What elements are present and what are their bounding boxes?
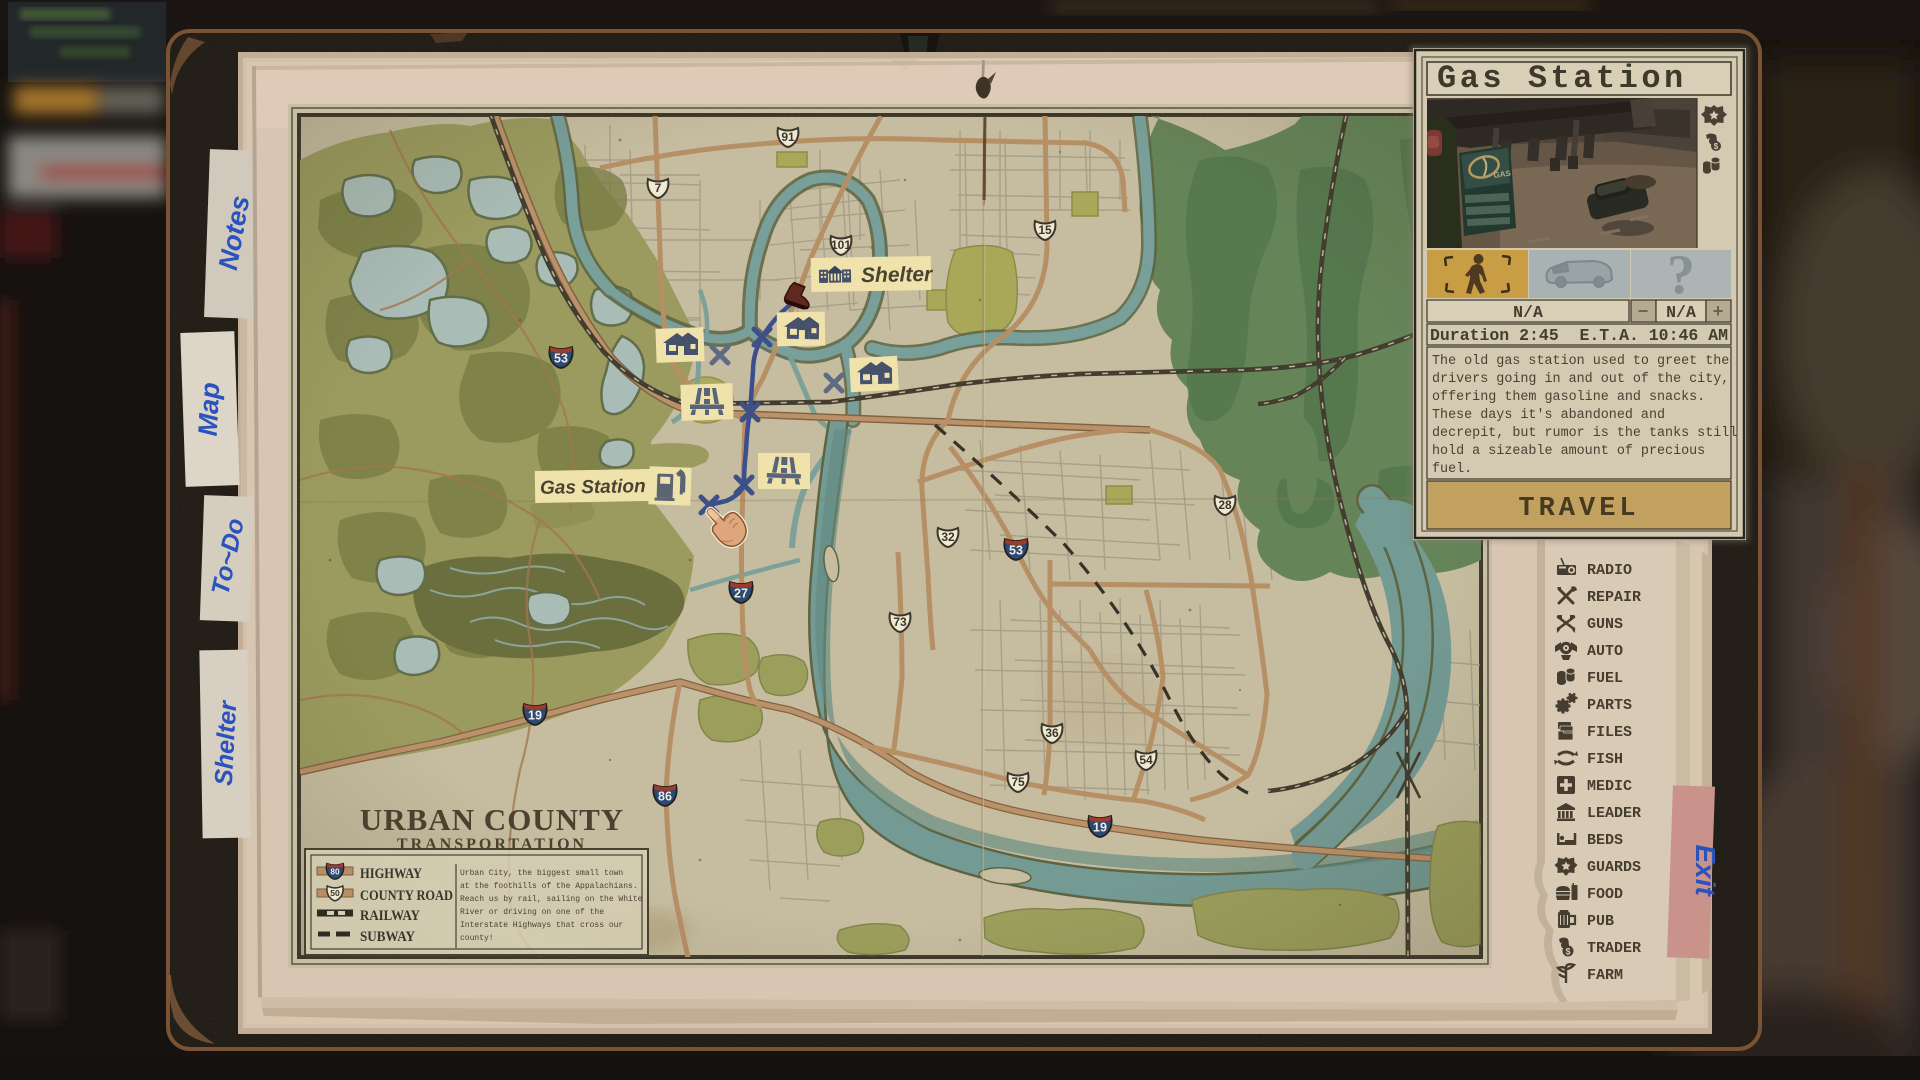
svg-text:URBAN COUNTY: URBAN COUNTY (360, 802, 624, 837)
svg-text:27: 27 (734, 587, 748, 601)
svg-text:75: 75 (1011, 775, 1025, 789)
svg-text:decrepit, but rumor is the tan: decrepit, but rumor is the tanks still (1432, 426, 1737, 441)
svg-text:7: 7 (655, 181, 662, 195)
svg-text:Reach us by rail, sailing on t: Reach us by rail, sailing on the White (460, 895, 643, 904)
svg-text:TRADER: TRADER (1587, 940, 1641, 957)
svg-text:Gas Station: Gas Station (540, 476, 646, 499)
svg-text:GUARDS: GUARDS (1587, 859, 1641, 876)
svg-text:hold a sizeable amount of prec: hold a sizeable amount of precious (1432, 444, 1705, 459)
svg-text:28: 28 (1218, 498, 1232, 512)
svg-text:N/A: N/A (1666, 303, 1696, 322)
svg-text:BEDS: BEDS (1587, 832, 1623, 849)
svg-text:PUB: PUB (1587, 913, 1614, 930)
svg-text:19: 19 (1093, 821, 1107, 835)
svg-text:Exit: Exit (1690, 844, 1721, 897)
svg-text:MEDIC: MEDIC (1587, 778, 1632, 795)
svg-text:Shelter: Shelter (210, 699, 242, 786)
svg-text:These days it's abandoned and: These days it's abandoned and (1432, 408, 1665, 423)
svg-text:Shelter: Shelter (861, 263, 934, 287)
svg-text:+: + (1713, 303, 1724, 323)
svg-text:GUNS: GUNS (1587, 616, 1623, 633)
svg-text:TRAVEL: TRAVEL (1518, 494, 1639, 524)
svg-text:36: 36 (1045, 726, 1059, 740)
svg-text:FOOD: FOOD (1587, 886, 1623, 903)
svg-text:HIGHWAY: HIGHWAY (360, 866, 422, 882)
svg-text:RADIO: RADIO (1587, 562, 1632, 579)
svg-text:91: 91 (781, 130, 795, 144)
svg-text:−: − (1638, 303, 1649, 323)
svg-text:The old gas station used to gr: The old gas station used to greet the (1432, 354, 1729, 369)
svg-text:REPAIR: REPAIR (1587, 589, 1641, 606)
svg-text:$: $ (1714, 142, 1719, 151)
svg-text:AUTO: AUTO (1587, 643, 1623, 660)
svg-text:Interstate Highways that cross: Interstate Highways that cross our (460, 921, 623, 930)
svg-text:Gas Station: Gas Station (1437, 60, 1687, 97)
svg-text:River or driving on one of the: River or driving on one of the (460, 908, 604, 917)
svg-text:53: 53 (1009, 544, 1023, 558)
svg-text:COUNTY ROAD: COUNTY ROAD (360, 888, 453, 904)
svg-text:80: 80 (330, 867, 340, 876)
svg-text:Duration 2:45: Duration 2:45 (1430, 326, 1559, 345)
svg-text:N/A: N/A (1513, 303, 1543, 322)
svg-text:SUBWAY: SUBWAY (360, 929, 415, 945)
svg-text:E.T.A. 10:46 AM: E.T.A. 10:46 AM (1579, 326, 1728, 345)
svg-text:Urban City, the biggest small: Urban City, the biggest small town (460, 869, 623, 878)
svg-text:?: ? (1667, 244, 1695, 306)
svg-text:drivers going in and out of th: drivers going in and out of the city, (1432, 372, 1729, 387)
svg-text:FILES: FILES (1587, 724, 1632, 741)
svg-text:FARM: FARM (1587, 967, 1623, 984)
svg-text:32: 32 (941, 530, 955, 544)
svg-text:15: 15 (1038, 223, 1052, 237)
svg-text:RAILWAY: RAILWAY (360, 908, 420, 924)
svg-text:50: 50 (330, 888, 340, 898)
svg-text:offering them gasoline and sna: offering them gasoline and snacks. (1432, 390, 1705, 405)
svg-text:101: 101 (831, 238, 851, 252)
svg-text:54: 54 (1139, 753, 1153, 767)
svg-text:$: $ (1565, 947, 1570, 957)
svg-text:fuel.: fuel. (1432, 462, 1472, 477)
svg-text:86: 86 (658, 790, 672, 804)
svg-text:LEADER: LEADER (1587, 805, 1641, 822)
svg-text:Map: Map (193, 381, 226, 436)
svg-text:FISH: FISH (1587, 751, 1623, 768)
svg-text:FUEL: FUEL (1587, 670, 1623, 687)
svg-text:53: 53 (554, 352, 568, 366)
svg-text:county!: county! (460, 934, 494, 943)
svg-text:73: 73 (893, 615, 907, 629)
svg-text:at the foothills of the Appala: at the foothills of the Appalachians. (460, 882, 638, 891)
svg-text:PARTS: PARTS (1587, 697, 1632, 714)
svg-text:19: 19 (528, 709, 542, 723)
